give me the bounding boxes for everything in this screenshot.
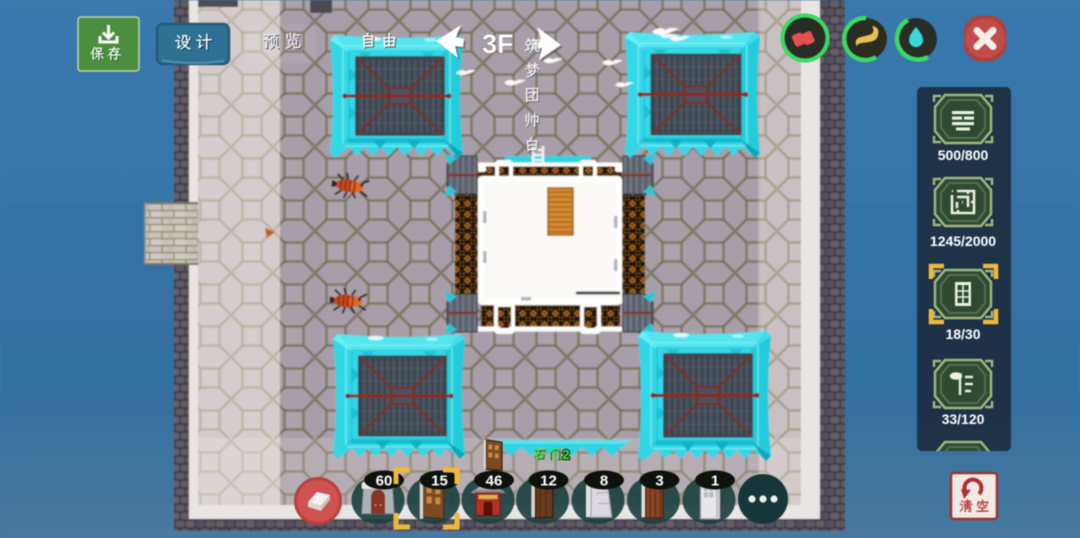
svg-text:60: 60	[376, 473, 393, 490]
svg-text:3F: 3F	[482, 29, 514, 59]
svg-text:18/30: 18/30	[945, 326, 980, 342]
svg-text:33/120: 33/120	[942, 411, 985, 427]
svg-text:2: 2	[562, 447, 569, 462]
svg-text:1245/2000: 1245/2000	[930, 233, 996, 249]
svg-text:12: 12	[540, 473, 557, 490]
svg-text:3: 3	[655, 473, 663, 490]
svg-text:8: 8	[600, 473, 608, 490]
svg-text:1: 1	[711, 473, 719, 490]
svg-text:500/800: 500/800	[938, 147, 989, 163]
svg-text:15: 15	[431, 473, 448, 490]
svg-text:46: 46	[486, 473, 503, 490]
